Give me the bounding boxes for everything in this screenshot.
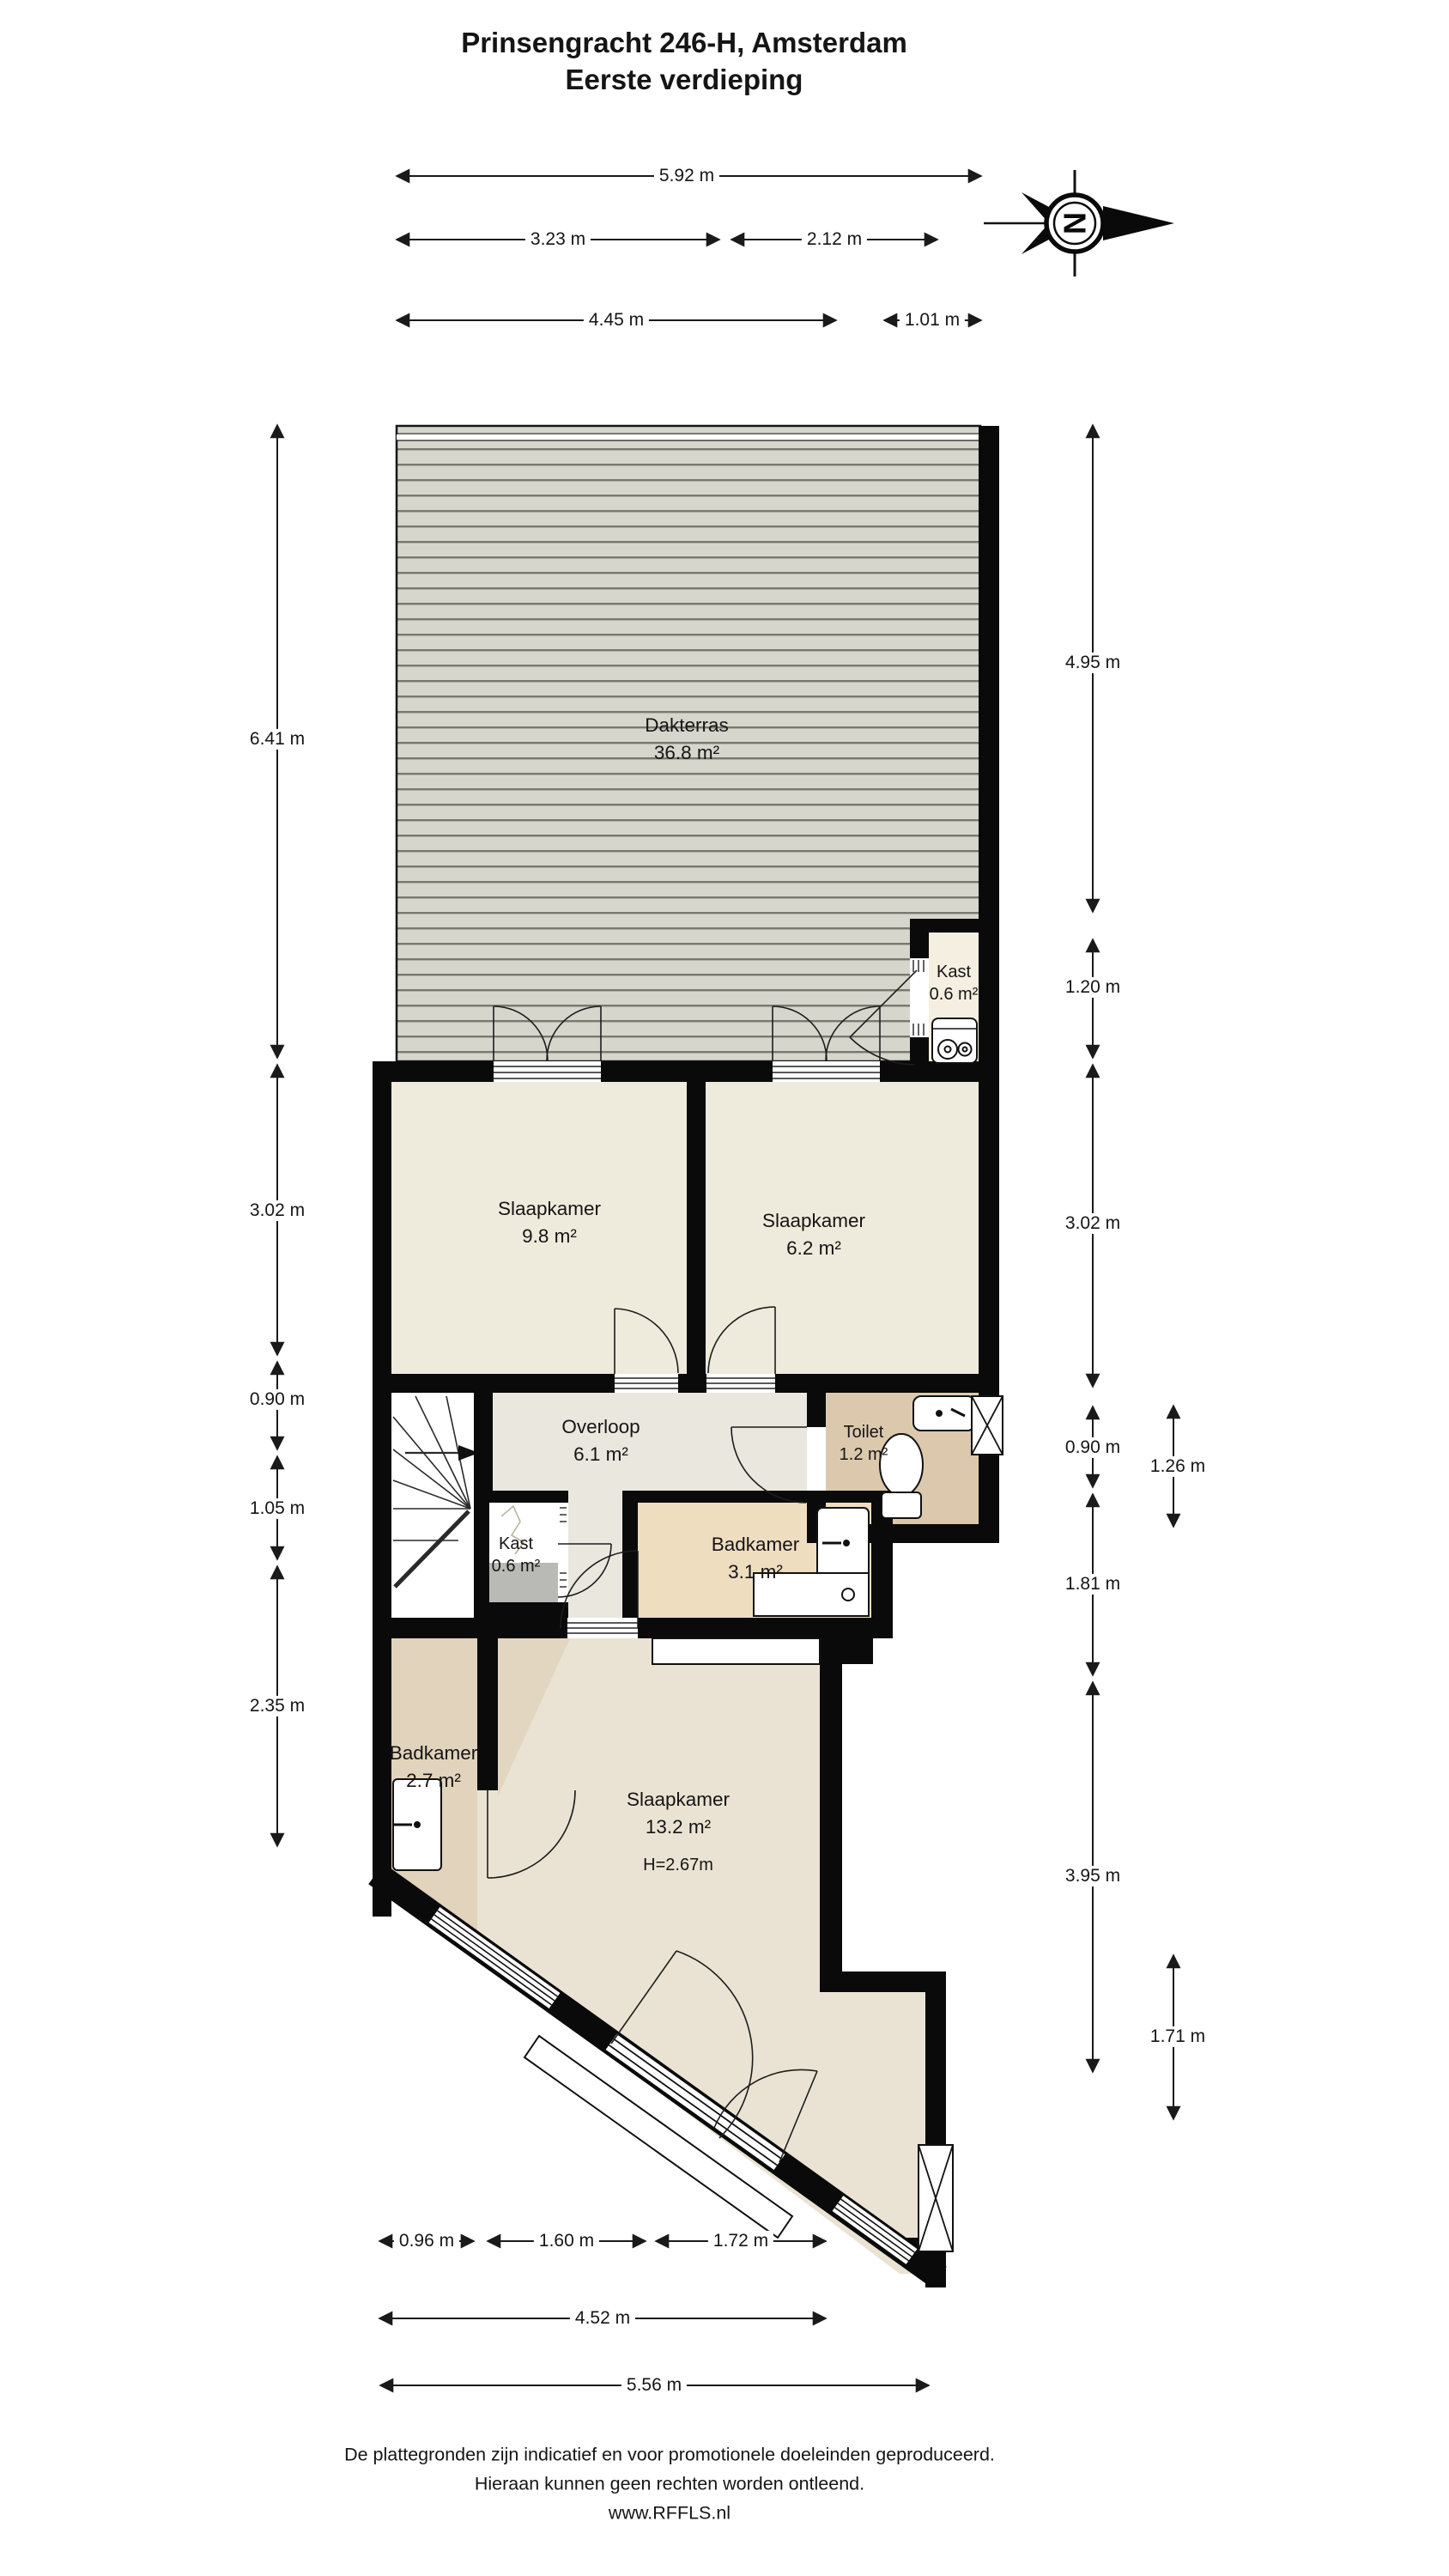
room-area: 3.1 m²: [712, 1558, 800, 1586]
toilet-sink-icon: [913, 1396, 975, 1431]
room-label-slaapkamer2: Slaapkamer 6.2 m²: [762, 1207, 865, 1262]
footer-disclaimer-line1: De plattegronden zijn indicatief en voor…: [344, 2442, 995, 2469]
dim-bottom-2: 1.60 m: [534, 2231, 599, 2251]
dim-right-1: 4.95 m: [1060, 653, 1125, 673]
room-label-badkamer1: Badkamer 3.1 m²: [712, 1531, 800, 1586]
boiler-icon: [932, 1018, 977, 1063]
north-compass-icon: N: [984, 170, 1174, 276]
dim-top-4: 4.45 m: [584, 310, 649, 331]
dim-top-2: 3.23 m: [525, 229, 591, 250]
room-area: 1.2 m²: [840, 1443, 888, 1466]
title-line1: Prinsengracht 246-H, Amsterdam: [461, 25, 907, 62]
room-name: Slaapkamer: [498, 1195, 601, 1223]
room-area: 0.6 m²: [492, 1555, 541, 1577]
room-area: 2.7 m²: [390, 1767, 478, 1795]
room-name: Toilet: [840, 1421, 888, 1443]
footer-disclaimer-line2: Hieraan kunnen geen rechten worden ontle…: [475, 2471, 864, 2498]
room-area: 6.1 m²: [561, 1441, 640, 1468]
compass-letter: N: [1058, 212, 1093, 234]
room-area: 13.2 m²: [627, 1814, 730, 1841]
footer-website: www.RFFLS.nl: [609, 2500, 731, 2527]
room-label-toilet: Toilet 1.2 m²: [840, 1421, 888, 1466]
shaft-window-lower-icon: [919, 2145, 953, 2251]
dim-right-inner-2: 1.71 m: [1145, 2026, 1210, 2047]
dim-right-4: 0.90 m: [1060, 1437, 1125, 1458]
dim-right-6: 3.95 m: [1060, 1866, 1125, 1886]
room-label-overloop: Overloop 6.1 m²: [561, 1413, 640, 1468]
shaft-window-icon: [972, 1396, 1003, 1455]
dim-left-4: 1.05 m: [245, 1498, 310, 1519]
dim-bottom-4: 4.52 m: [570, 2308, 635, 2329]
dim-left-3: 0.90 m: [245, 1389, 310, 1410]
room-area: 9.8 m²: [498, 1223, 601, 1250]
room-name: Dakterras: [645, 712, 729, 739]
title-line2: Eerste verdieping: [461, 62, 907, 99]
room-label-dakterras: Dakterras 36.8 m²: [645, 712, 729, 767]
dim-bottom-5: 5.56 m: [621, 2375, 687, 2396]
room-label-slaapkamer1: Slaapkamer 9.8 m²: [498, 1195, 601, 1250]
dim-top-3: 2.12 m: [802, 229, 867, 250]
room-area: 0.6 m²: [930, 983, 979, 1005]
room-name: Kast: [930, 961, 979, 983]
room-name: Slaapkamer: [762, 1207, 865, 1235]
dim-top-1: 5.92 m: [654, 166, 719, 186]
dim-bottom-3: 1.72 m: [708, 2231, 773, 2251]
dim-right-5: 1.81 m: [1060, 1574, 1125, 1595]
staircase: [391, 1393, 479, 1618]
room-name: Kast: [492, 1533, 541, 1555]
room-label-kast-midden: Kast 0.6 m²: [492, 1533, 541, 1577]
dim-top-5: 1.01 m: [900, 310, 965, 331]
interior-window: [652, 1638, 820, 1664]
dim-bottom-1: 0.96 m: [394, 2231, 459, 2251]
ceiling-height-note: H=2.67m: [643, 1854, 713, 1876]
floor-plan-drawing: N: [0, 0, 1449, 2576]
dim-left-5: 2.35 m: [245, 1696, 310, 1716]
room-name: Overloop: [561, 1413, 640, 1441]
room-label-kast-boven: Kast 0.6 m²: [930, 961, 979, 1005]
dim-left-2: 3.02 m: [245, 1200, 310, 1221]
room-label-badkamer2: Badkamer 2.7 m²: [390, 1740, 478, 1795]
room-area: 6.2 m²: [762, 1235, 865, 1262]
room-name: Badkamer: [712, 1531, 800, 1558]
room-name: Badkamer: [390, 1740, 478, 1767]
dim-left-1: 6.41 m: [245, 729, 310, 750]
dim-right-2: 1.20 m: [1060, 977, 1125, 998]
room-area: 36.8 m²: [645, 739, 729, 767]
dim-right-inner-1: 1.26 m: [1145, 1456, 1210, 1477]
floorplan-page: N Prinsengracht 246-H, Amsterdam Eerste …: [0, 0, 1449, 2576]
dim-right-3: 3.02 m: [1060, 1213, 1125, 1234]
bathroom1-sink-icon: [817, 1508, 869, 1578]
room-label-slaapkamer3: Slaapkamer 13.2 m²: [627, 1786, 730, 1841]
page-title: Prinsengracht 246-H, Amsterdam Eerste ve…: [461, 25, 907, 99]
room-name: Slaapkamer: [627, 1786, 730, 1814]
